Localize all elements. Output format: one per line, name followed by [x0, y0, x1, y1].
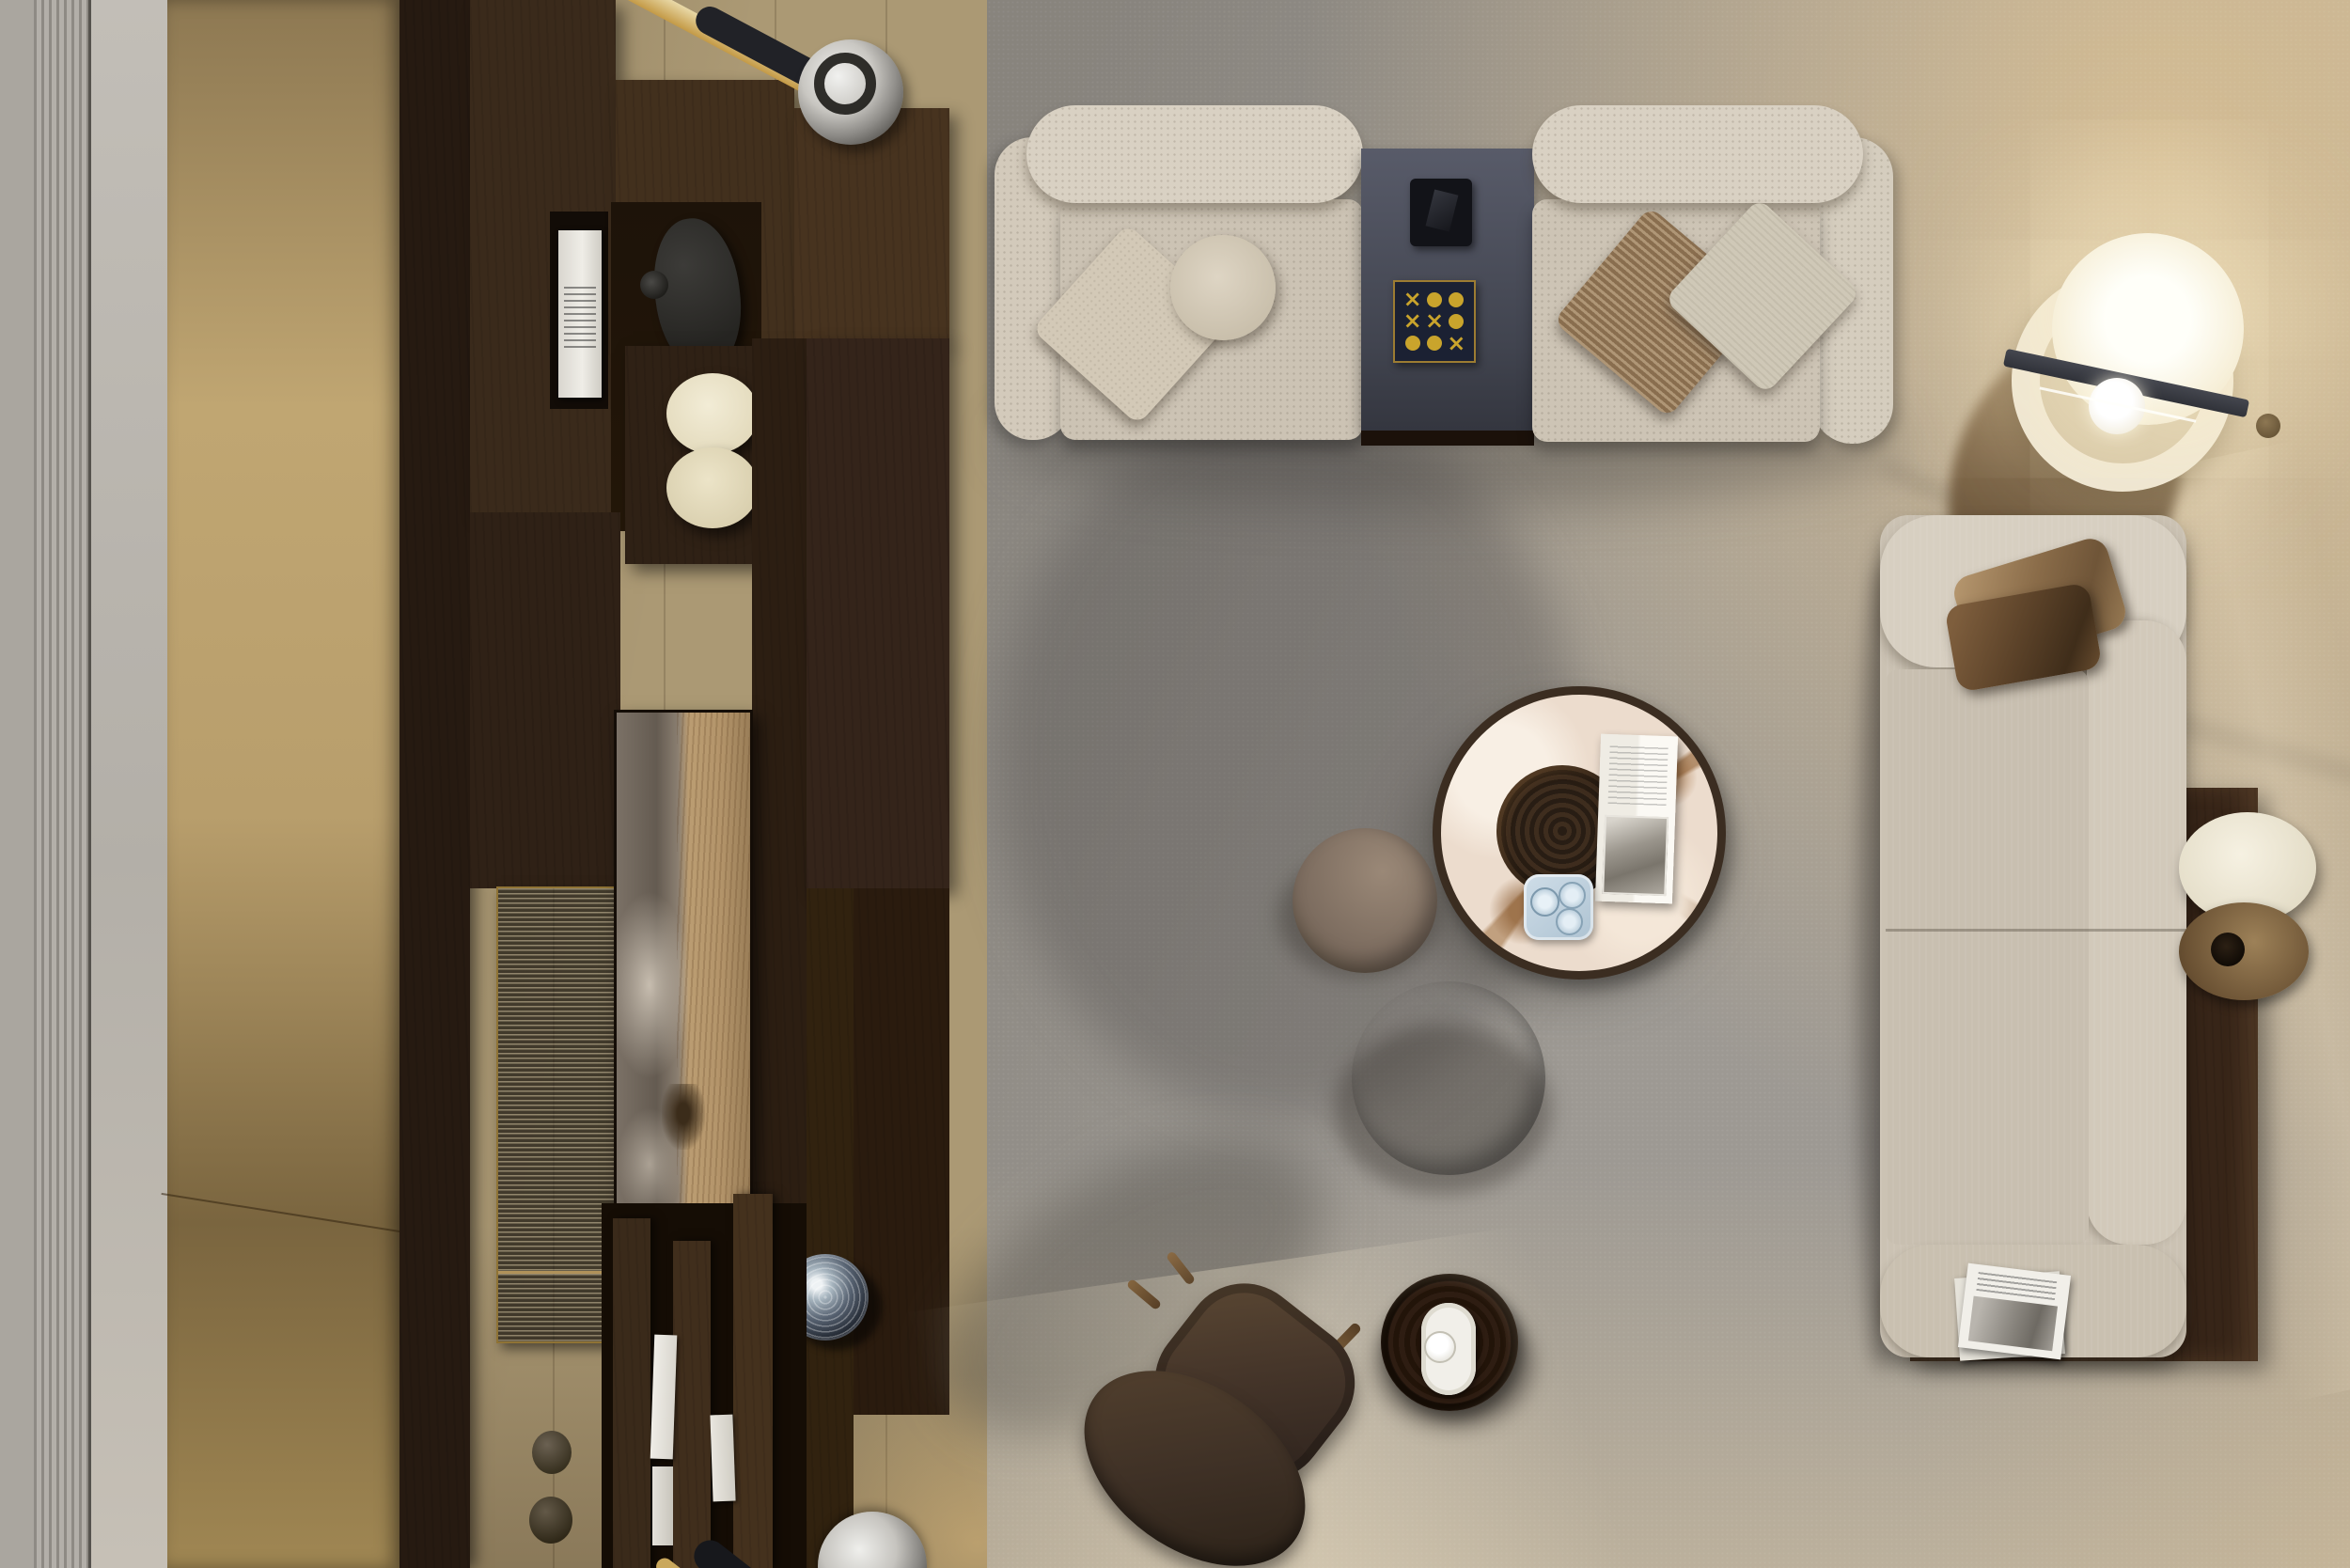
display-book-print — [564, 282, 596, 348]
disc-light-lower — [666, 447, 759, 528]
x-piece: × — [1425, 312, 1444, 330]
tray-cup — [1424, 1331, 1456, 1363]
living-room-top-view: ×××× — [0, 0, 2350, 1568]
magazine — [1958, 1263, 2071, 1360]
chaise-seat — [1886, 669, 2089, 1245]
open-book-text — [1608, 744, 1668, 806]
o-piece — [1427, 336, 1442, 351]
floor-lamp-knob — [2256, 414, 2280, 438]
decor-sphere-1 — [532, 1431, 572, 1474]
shelf-fin-1 — [613, 1218, 650, 1568]
shelf-fin-2 — [673, 1241, 711, 1568]
decor-sphere-2 — [529, 1497, 572, 1544]
round-pillow — [1170, 235, 1276, 340]
unit-box-c — [794, 108, 949, 343]
glass-3 — [1556, 908, 1583, 935]
unit-box-i — [807, 888, 854, 1568]
tic-tac-toe-board: ×××× — [1393, 280, 1476, 363]
wood-wall-panel — [167, 0, 399, 1568]
disc-light-upper — [666, 373, 759, 454]
o-piece — [1449, 292, 1464, 307]
magazine-photo — [1968, 1296, 2058, 1352]
x-piece: × — [1403, 290, 1422, 308]
unit-box-f — [807, 338, 949, 888]
sofa-top-right-backrest — [1532, 105, 1863, 203]
chaise-seat-split — [1886, 929, 2186, 932]
fluted-trim — [34, 0, 91, 1568]
chaise-side-column — [2087, 620, 2186, 1245]
arc-lamp-top-hub — [814, 53, 876, 115]
console-base-strip — [1361, 431, 1534, 446]
o-piece — [1405, 336, 1420, 351]
magazine-text-lines — [1976, 1272, 2057, 1300]
pouf-large — [1352, 981, 1545, 1175]
shelf-books-1 — [650, 1335, 678, 1460]
shelf-books-3 — [652, 1466, 673, 1545]
artwork — [614, 710, 753, 1218]
shelf-books-2 — [710, 1415, 735, 1502]
sofa-top-left-backrest — [1026, 105, 1363, 203]
pouf-small — [1292, 828, 1437, 973]
open-book-photo — [1602, 815, 1668, 896]
o-piece — [1449, 314, 1464, 329]
open-book — [1595, 734, 1678, 904]
glass-2 — [1559, 882, 1586, 909]
glass-1 — [1530, 887, 1559, 917]
shelf-fin-3 — [733, 1194, 773, 1568]
teapot-large-spout — [640, 271, 668, 299]
x-piece: × — [1447, 335, 1465, 353]
unit-box-g — [470, 512, 620, 888]
bronze-disc-vase-hole — [2211, 933, 2245, 966]
grey-wall-panel — [91, 0, 167, 1568]
unit-partition-column — [399, 0, 470, 1568]
artwork-tree — [662, 1084, 705, 1150]
o-piece — [1427, 292, 1442, 307]
x-piece: × — [1403, 312, 1422, 330]
